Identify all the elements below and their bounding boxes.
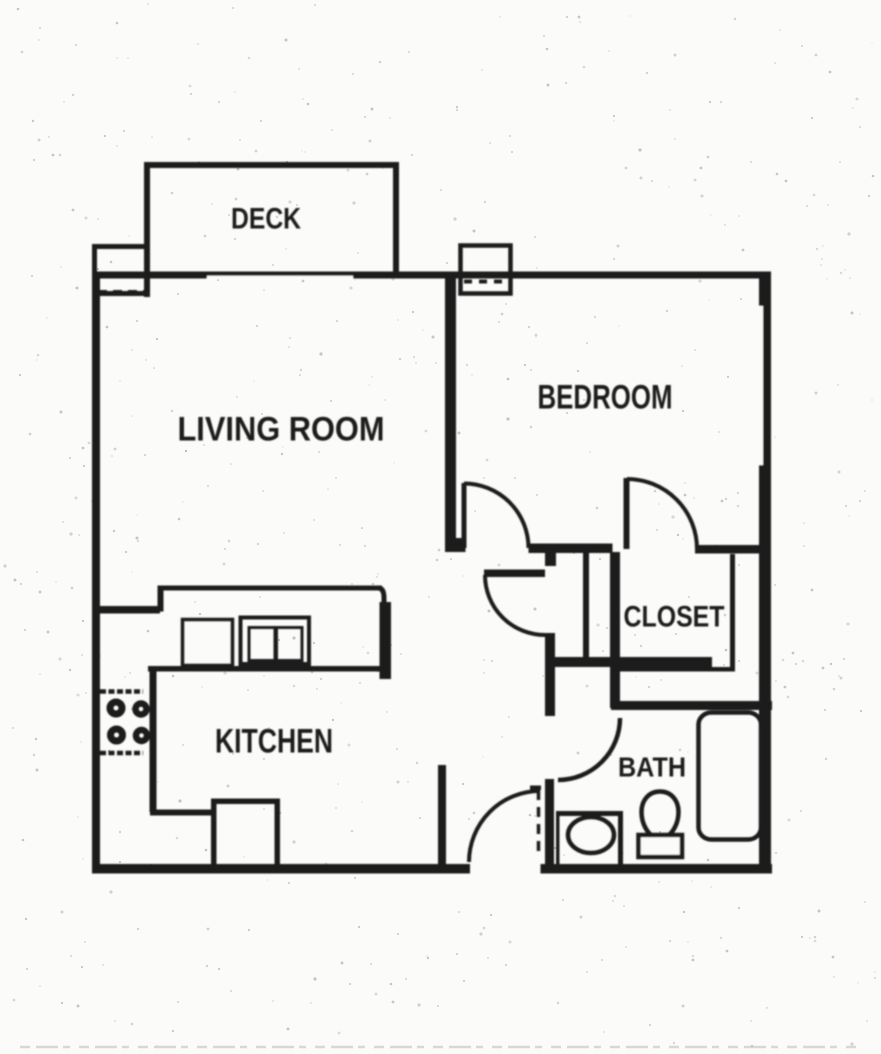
svg-text:BEDROOM: BEDROOM	[538, 379, 673, 417]
svg-text:KITCHEN: KITCHEN	[215, 723, 333, 761]
svg-text:DECK: DECK	[231, 203, 301, 236]
svg-text:LIVING ROOM: LIVING ROOM	[178, 411, 385, 449]
svg-text:CLOSET: CLOSET	[624, 601, 725, 634]
svg-text:BATH: BATH	[618, 752, 686, 783]
